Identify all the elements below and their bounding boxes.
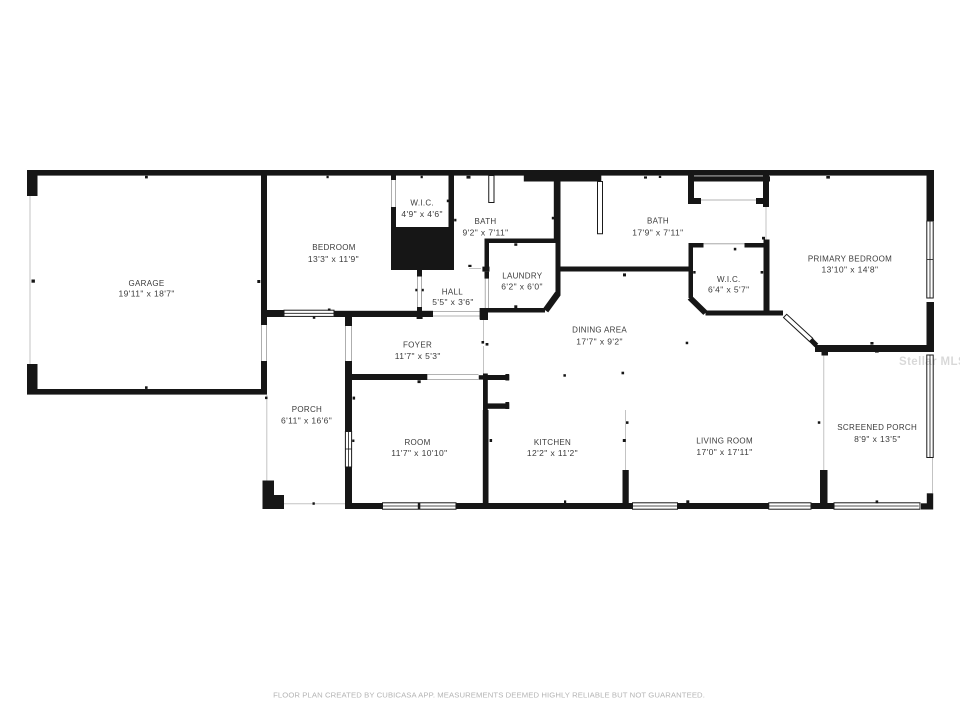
svg-text:19'11" x 18'7": 19'11" x 18'7" (119, 288, 175, 298)
svg-text:11'7" x 5'3": 11'7" x 5'3" (395, 351, 441, 361)
svg-text:5'5" x 3'6": 5'5" x 3'6" (432, 297, 474, 307)
svg-text:DINING AREA: DINING AREA (572, 326, 627, 335)
svg-text:LAUNDRY: LAUNDRY (502, 272, 543, 281)
svg-text:4'9" x 4'6": 4'9" x 4'6" (401, 209, 443, 219)
svg-text:12'2" x 11'2": 12'2" x 11'2" (527, 448, 578, 458)
svg-text:HALL: HALL (442, 288, 463, 297)
svg-text:17'9" x 7'11": 17'9" x 7'11" (632, 227, 683, 237)
svg-text:ROOM: ROOM (404, 438, 430, 447)
svg-text:FLOOR PLAN CREATED BY CUBICASA: FLOOR PLAN CREATED BY CUBICASA APP. MEAS… (273, 691, 705, 700)
svg-text:6'4" x 5'7": 6'4" x 5'7" (708, 285, 750, 295)
svg-text:8'9" x 13'5": 8'9" x 13'5" (854, 434, 901, 444)
svg-text:LIVING ROOM: LIVING ROOM (696, 437, 753, 446)
svg-text:BATH: BATH (647, 217, 669, 226)
svg-text:BEDROOM: BEDROOM (312, 243, 355, 252)
svg-text:13'3" x 11'9": 13'3" x 11'9" (308, 254, 359, 264)
svg-text:11'7" x 10'10": 11'7" x 10'10" (391, 448, 447, 458)
svg-text:17'7" x 9'2": 17'7" x 9'2" (576, 337, 623, 347)
svg-text:6'2" x 6'0": 6'2" x 6'0" (501, 281, 543, 291)
svg-text:13'10" x 14'8": 13'10" x 14'8" (822, 265, 879, 275)
svg-text:PORCH: PORCH (292, 405, 322, 414)
svg-text:KITCHEN: KITCHEN (534, 438, 571, 447)
svg-text:FOYER: FOYER (403, 340, 432, 349)
svg-text:W.I.C.: W.I.C. (410, 199, 434, 208)
svg-text:6'11" x 16'6": 6'11" x 16'6" (281, 416, 332, 426)
svg-text:SCREENED PORCH: SCREENED PORCH (837, 423, 917, 432)
svg-text:PRIMARY BEDROOM: PRIMARY BEDROOM (808, 255, 892, 264)
svg-text:Stellar MLS: Stellar MLS (899, 356, 960, 368)
svg-text:BATH: BATH (475, 217, 497, 226)
svg-text:17'0" x 17'11": 17'0" x 17'11" (696, 447, 752, 457)
svg-text:9'2" x 7'11": 9'2" x 7'11" (462, 228, 508, 238)
svg-text:GARAGE: GARAGE (128, 279, 164, 288)
svg-text:W.I.C.: W.I.C. (717, 275, 741, 284)
